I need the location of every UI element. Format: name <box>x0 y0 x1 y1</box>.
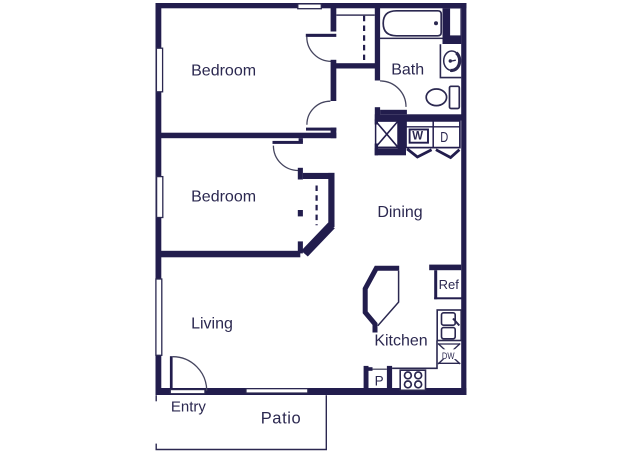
svg-text:Patio: Patio <box>261 410 302 428</box>
svg-text:Dining: Dining <box>377 204 422 221</box>
svg-text:Bedroom: Bedroom <box>191 63 256 80</box>
svg-text:D: D <box>440 129 448 146</box>
svg-text:W: W <box>412 131 423 143</box>
svg-text:DW: DW <box>442 351 455 362</box>
svg-text:Bath: Bath <box>391 61 424 78</box>
svg-text:P: P <box>375 373 384 388</box>
svg-text:Ref: Ref <box>439 277 460 292</box>
svg-text:Kitchen: Kitchen <box>374 332 427 349</box>
svg-text:Living: Living <box>191 315 233 332</box>
svg-text:Bedroom: Bedroom <box>191 189 256 206</box>
svg-text:Entry: Entry <box>171 399 207 416</box>
